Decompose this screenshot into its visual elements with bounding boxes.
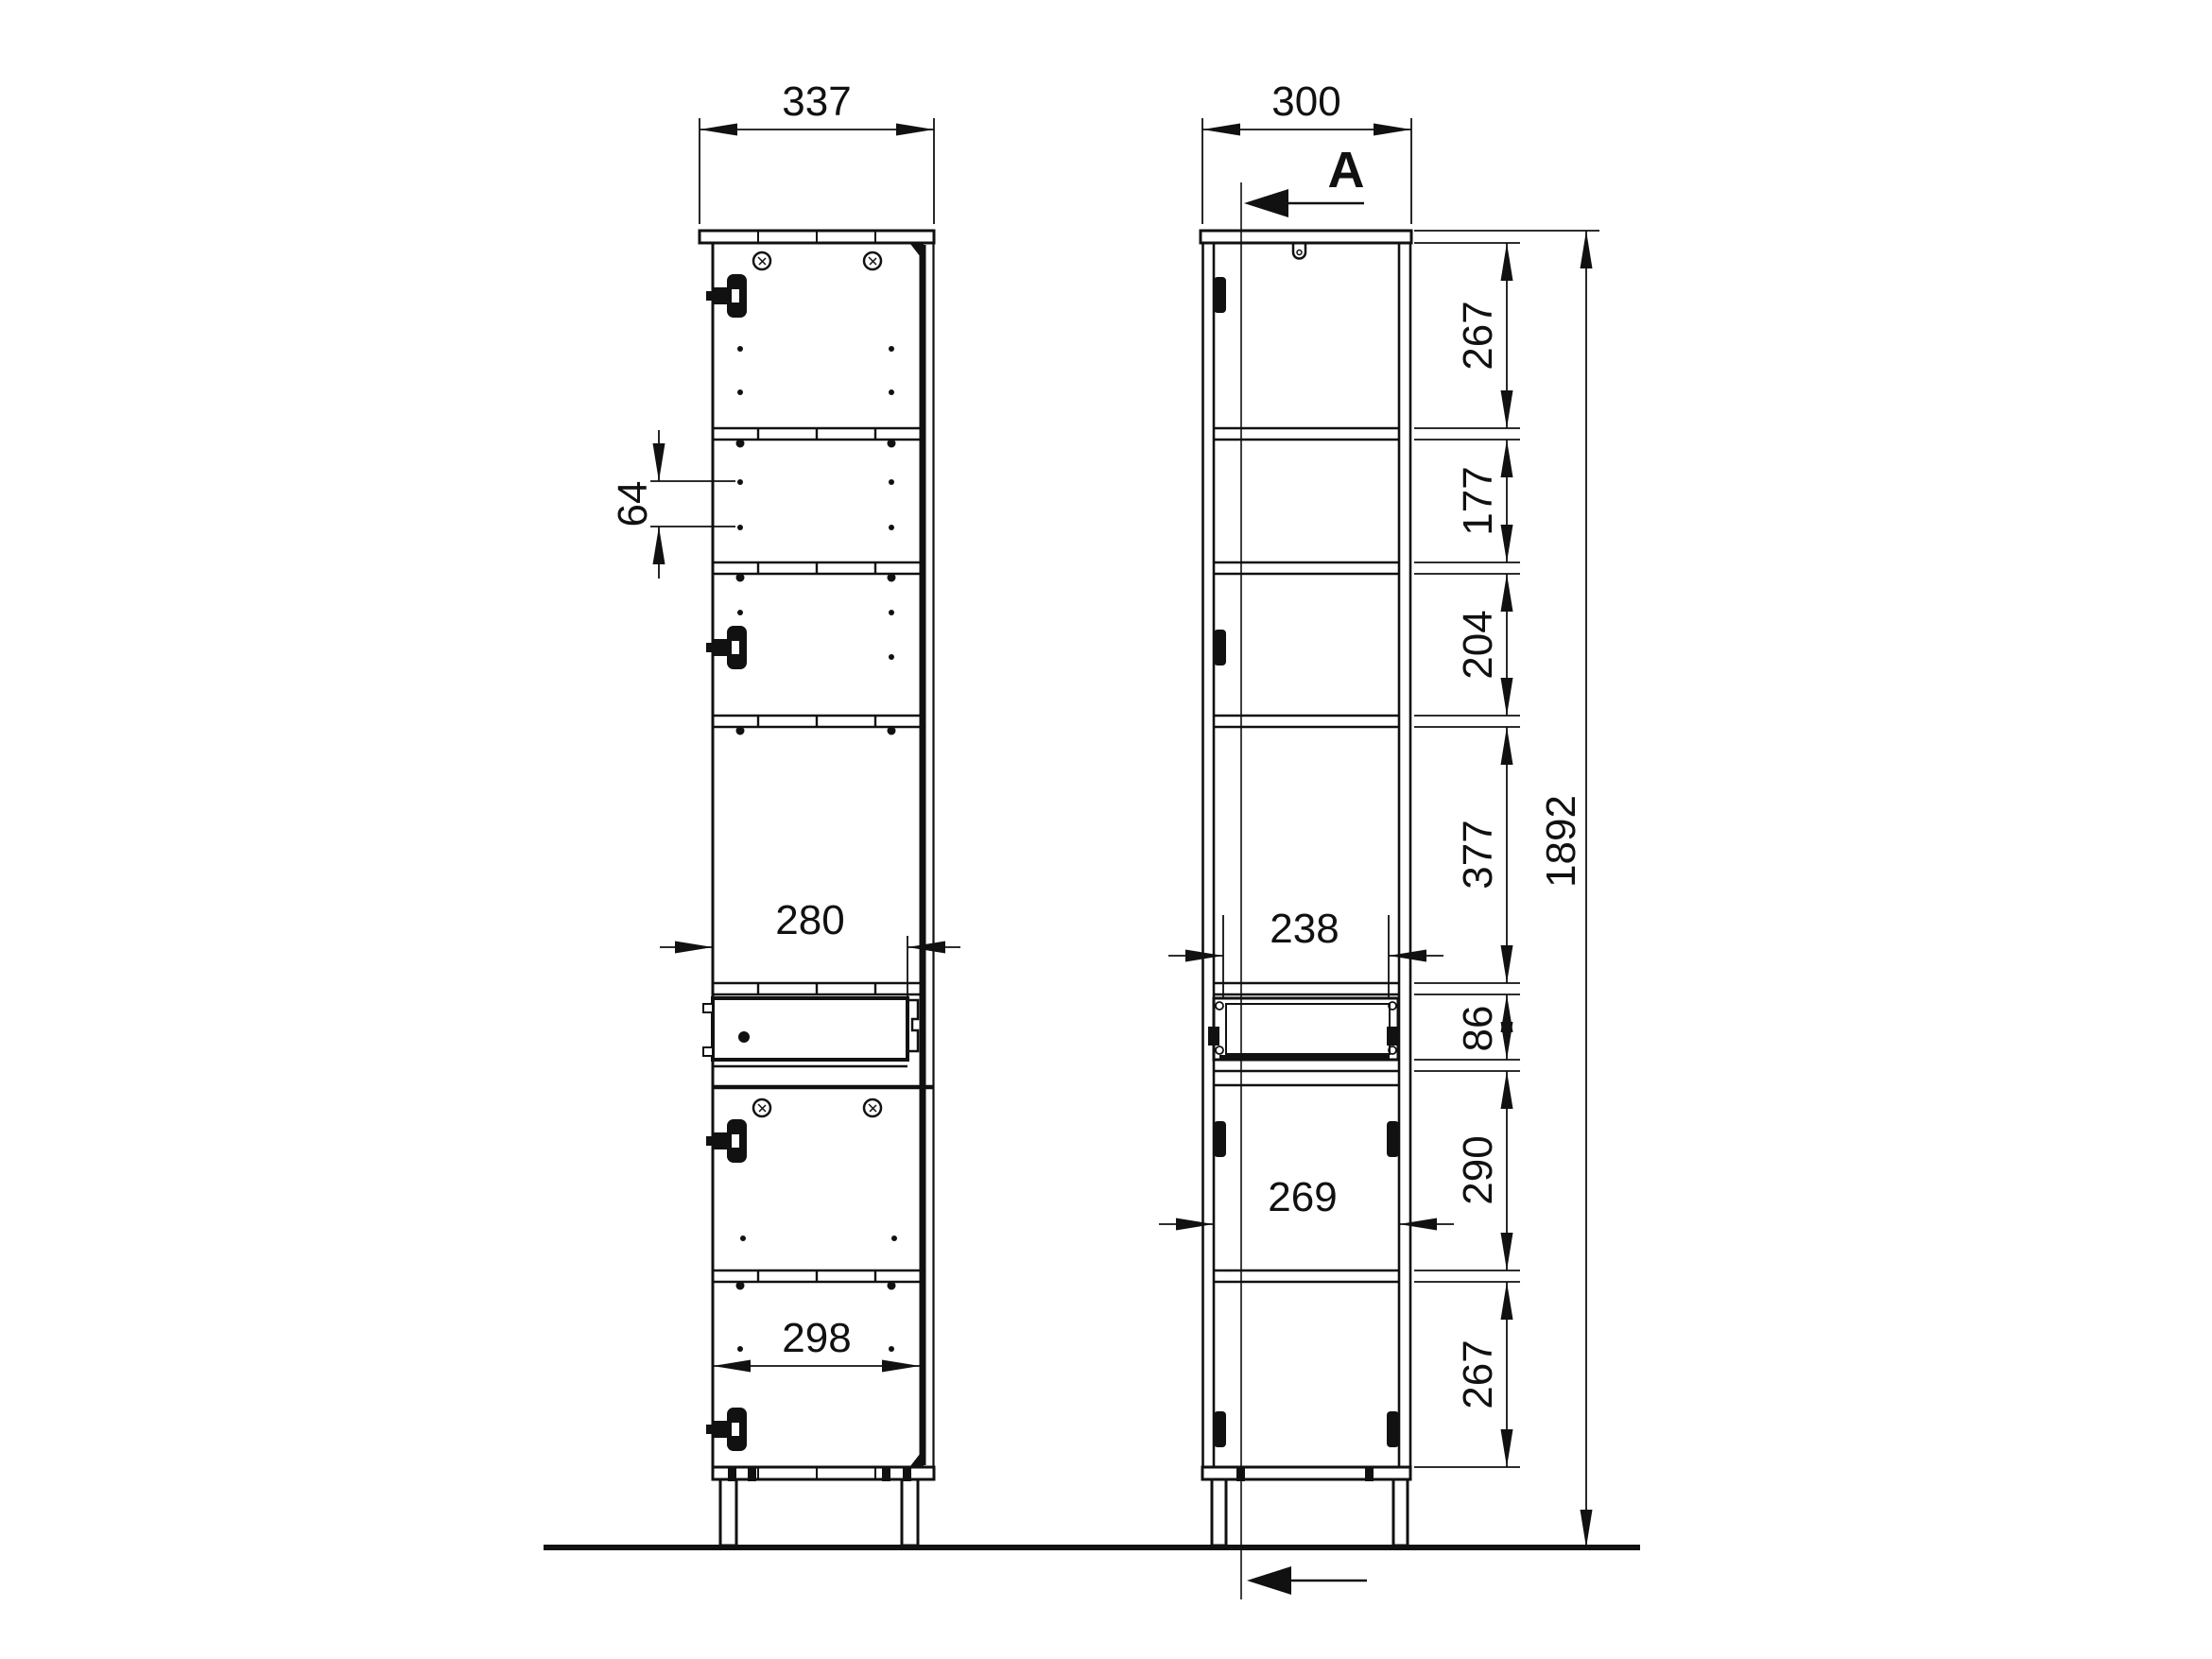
front-shelf-band-3 [713, 716, 920, 727]
front-bottom-board [713, 1467, 934, 1479]
front-shelf-band-5 [713, 1270, 920, 1282]
front-shelf-band-2 [713, 562, 920, 574]
keyhole-hanger-icon [1293, 244, 1305, 259]
dim-front-width-label: 337 [782, 78, 851, 125]
front-drawer-box [703, 998, 918, 1066]
dim-door-width-label: 298 [782, 1315, 851, 1361]
chain-seg-3-label: 204 [1455, 610, 1501, 679]
side-front-leg [1212, 1479, 1226, 1546]
dim-drawer-front-label: 280 [775, 897, 844, 943]
cabinet-drawing-canvas: A 337 300 64 280 298 238 269 [0, 0, 2212, 1659]
front-door-edge-top-wedge [910, 244, 924, 261]
front-shelf-band-1 [713, 428, 920, 440]
dim-side-depth-ext [1202, 118, 1411, 224]
keyhole-hanger-hole [1297, 251, 1302, 255]
dimensions: 337 300 64 280 298 238 269 [610, 78, 1599, 1547]
dim-lower-depth-label: 269 [1268, 1174, 1337, 1220]
side-back-leg [1393, 1479, 1408, 1546]
drawer-knob-dot [738, 1031, 750, 1043]
chain-seg-2-label: 177 [1455, 466, 1501, 535]
chain-seg-7-label: 267 [1455, 1339, 1501, 1408]
front-left-leg [720, 1479, 736, 1546]
dim-drawer-depth-label: 238 [1270, 906, 1339, 952]
dim-hole-spacing-ext [650, 481, 735, 527]
side-top-board [1201, 231, 1411, 243]
chain-seg-6-label: 290 [1455, 1135, 1501, 1204]
chain-seg-5-label: 86 [1455, 1006, 1501, 1052]
dim-hole-spacing-label: 64 [610, 481, 656, 527]
front-bottom-board-joints [758, 1467, 875, 1479]
side-front-wall [1203, 243, 1215, 1467]
side-view: A [1201, 142, 1411, 1599]
front-right-leg [902, 1479, 918, 1546]
section-label: A [1328, 142, 1365, 199]
section-arrow-bottom [1247, 1566, 1367, 1595]
front-shelf-pin-holes [737, 346, 897, 1352]
chain-seg-4-label: 377 [1455, 820, 1501, 889]
technical-drawing-page: A 337 300 64 280 298 238 269 [0, 0, 2212, 1659]
side-drawer-box [1208, 998, 1398, 1060]
side-back-wall [1399, 243, 1410, 1467]
front-top-board-joints [758, 231, 875, 243]
front-shelf-band-4 [713, 983, 920, 994]
dim-front-width-ext [700, 118, 934, 224]
dim-side-depth-label: 300 [1271, 78, 1340, 125]
side-bottom-board [1202, 1467, 1410, 1479]
chain-seg-1-label: 267 [1455, 301, 1501, 370]
dim-overall-height-label: 1892 [1538, 795, 1584, 888]
